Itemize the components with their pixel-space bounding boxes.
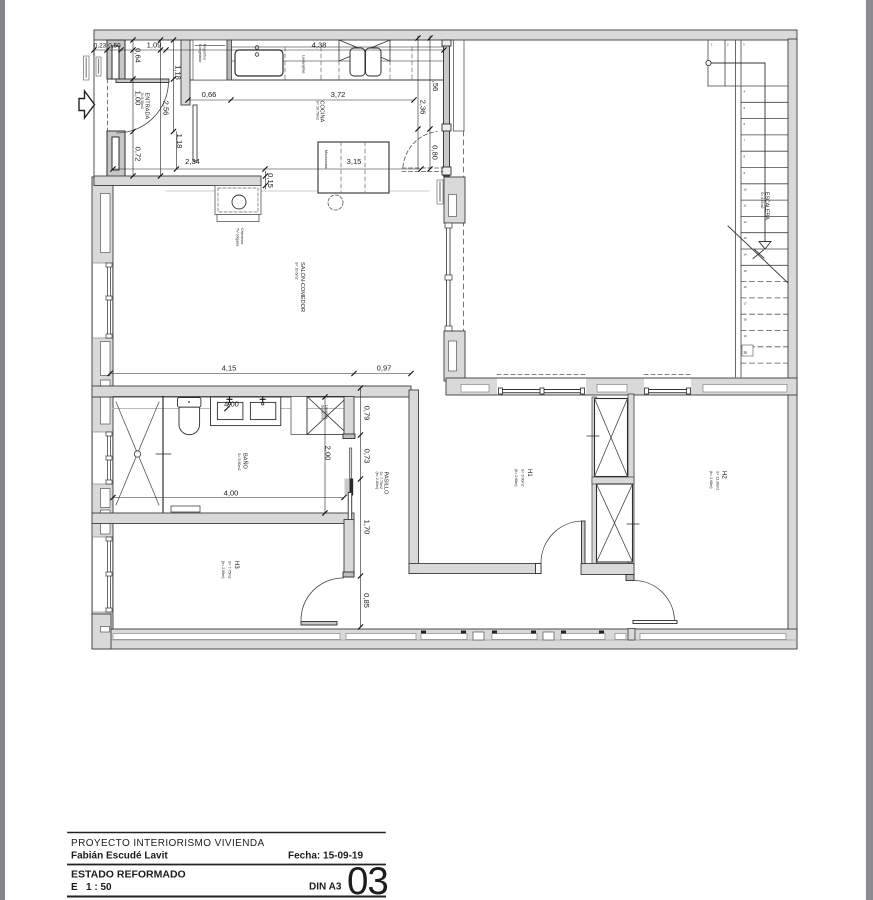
svg-text:S= 5.80m2: S= 5.80m2 (237, 453, 241, 470)
svg-text:0,80: 0,80 (431, 145, 440, 160)
svg-text:2,00: 2,00 (324, 446, 333, 461)
svg-text:4,00: 4,00 (224, 489, 239, 498)
svg-text:18: 18 (744, 318, 748, 322)
svg-text:21: 21 (744, 351, 748, 355)
svg-text:4,38: 4,38 (312, 41, 327, 50)
svg-text:H1: H1 (526, 469, 532, 477)
svg-text:H2: H2 (721, 471, 727, 479)
svg-text:Microondas: Microondas (324, 150, 328, 169)
svg-text:S= 11.30m2: S= 11.30m2 (716, 471, 720, 490)
svg-text:3,72: 3,72 (331, 90, 346, 99)
svg-text:0,64: 0,64 (134, 48, 143, 63)
svg-text:0,97: 0,97 (377, 364, 392, 373)
svg-text:03: 03 (347, 860, 388, 900)
svg-text:(h= 2.68m): (h= 2.68m) (709, 471, 713, 488)
svg-text:Frigorífico: Frigorífico (203, 44, 207, 60)
svg-text:0,50: 0,50 (108, 43, 121, 50)
svg-text:SALÓN-COMEDOR: SALÓN-COMEDOR (299, 262, 306, 312)
svg-text:TV colgada: TV colgada (236, 228, 240, 246)
svg-text:S= 10.76m2: S= 10.76m2 (316, 101, 320, 120)
svg-text:BAÑO: BAÑO (242, 453, 249, 470)
svg-text:0,73: 0,73 (363, 449, 372, 464)
svg-text:Congelador: Congelador (198, 44, 202, 63)
svg-text:ESTADO REFORMADO: ESTADO REFORMADO (71, 869, 186, 881)
svg-text:,56: ,56 (431, 81, 440, 92)
svg-text:E 1 : 50: E 1 : 50 (71, 882, 112, 893)
svg-text:0,15: 0,15 (266, 173, 275, 188)
svg-text:19: 19 (744, 334, 748, 338)
svg-text:Lavavajillas: Lavavajillas (302, 55, 306, 74)
svg-text:H3: H3 (233, 561, 239, 569)
svg-text:3,15: 3,15 (347, 157, 362, 166)
svg-text:1,00: 1,00 (134, 91, 143, 106)
svg-text:0,66: 0,66 (202, 90, 217, 99)
svg-text:16: 16 (744, 285, 748, 289)
svg-text:13: 13 (744, 236, 748, 240)
svg-text:14: 14 (744, 253, 748, 257)
svg-text:S= 20.6m2: S= 20.6m2 (295, 262, 299, 279)
svg-text:12: 12 (744, 220, 748, 224)
svg-text:S= 9.90m2: S= 9.90m2 (521, 469, 525, 486)
svg-text:2,56: 2,56 (162, 101, 171, 116)
svg-text:Secadora: Secadora (321, 405, 325, 419)
svg-text:15: 15 (744, 269, 748, 273)
svg-text:S= 4.60m2: S= 4.60m2 (760, 192, 764, 209)
svg-text:10: 10 (744, 187, 748, 191)
svg-text:0,72: 0,72 (134, 147, 143, 162)
svg-text:(h= 2.80m): (h= 2.80m) (375, 472, 379, 489)
svg-text:(h= 2.68m): (h= 2.68m) (514, 469, 518, 486)
svg-text:DIN A3: DIN A3 (309, 882, 342, 893)
svg-text:1,18: 1,18 (175, 134, 184, 149)
svg-text:S= 7.75m2: S= 7.75m2 (228, 561, 232, 578)
svg-text:1,70: 1,70 (363, 520, 372, 535)
svg-text:2,36: 2,36 (419, 100, 428, 115)
svg-text:1,18: 1,18 (174, 65, 183, 80)
svg-text:4,15: 4,15 (222, 364, 237, 373)
svg-text:2,34: 2,34 (185, 157, 200, 166)
svg-text:Fabián Escudé Lavit: Fabián Escudé Lavit (71, 851, 168, 862)
svg-text:PROYECTO INTERIORISMO VIVIEN: PROYECTO INTERIORISMO VIVIENDA (71, 838, 265, 849)
svg-text:1,09: 1,09 (147, 41, 162, 50)
svg-text:0,23: 0,23 (94, 43, 107, 50)
svg-text:0,85: 0,85 (362, 593, 371, 608)
svg-text:4,00: 4,00 (224, 399, 239, 408)
svg-text:(h= 2.66m): (h= 2.66m) (221, 561, 225, 578)
svg-text:0,79: 0,79 (363, 406, 372, 421)
svg-text:17: 17 (744, 301, 748, 305)
svg-text:11: 11 (744, 204, 747, 208)
svg-text:Chimenea: Chimenea (240, 228, 244, 244)
